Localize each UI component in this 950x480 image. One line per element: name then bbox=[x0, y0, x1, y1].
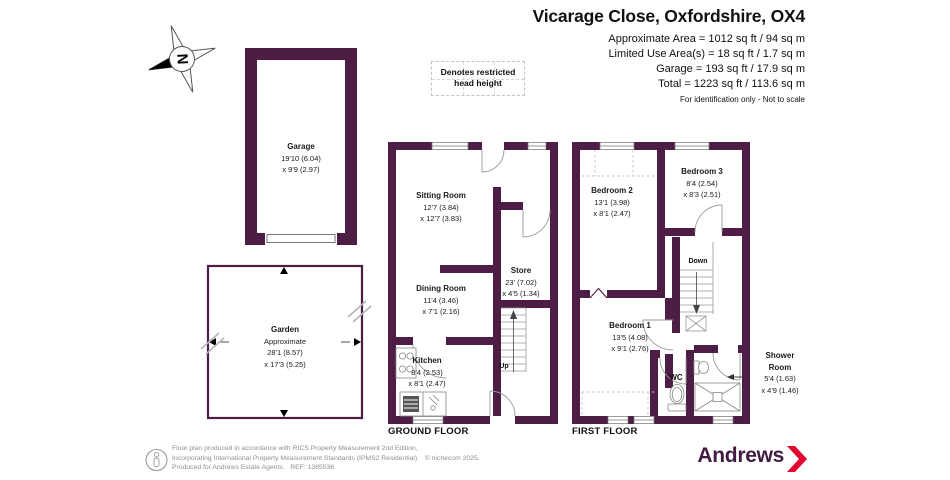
kitchen-label: Kitchen 8'4 (2.53) x 8'1 (2.47) bbox=[389, 355, 465, 390]
down-label: Down bbox=[684, 258, 712, 265]
disclaimer-text: For identification only - Not to scale bbox=[533, 95, 805, 104]
wc-label: WC bbox=[664, 373, 688, 382]
stairs-up-arrow bbox=[510, 310, 517, 319]
dining-room-label: Dining Room 11'4 (3.46) x 7'1 (2.16) bbox=[393, 283, 489, 318]
area-line: Limited Use Area(s) = 18 sq ft / 1.7 sq … bbox=[533, 47, 805, 62]
area-line: Approximate Area = 1012 sq ft / 94 sq m bbox=[533, 32, 805, 47]
toilet-icon bbox=[668, 385, 686, 412]
garden-label: Garden Approximate 28'1 (8.57) x 17'3 (5… bbox=[235, 324, 335, 370]
garage-door bbox=[267, 235, 335, 243]
door-v-symbol bbox=[590, 289, 607, 299]
first-floor-title: FIRST FLOOR bbox=[572, 426, 638, 437]
floor-plan-page: Vicarage Close, Oxfordshire, OX4 Approxi… bbox=[0, 0, 950, 480]
dimension-arrow-right bbox=[354, 338, 361, 346]
basin-icon bbox=[694, 361, 709, 374]
shower-room-label: Shower Room 5'4 (1.63) x 4'9 (1.46) bbox=[752, 350, 808, 396]
footer-disclaimer: Floor plan produced in accordance with R… bbox=[172, 444, 480, 473]
andrews-chevron-icon bbox=[787, 446, 807, 472]
bedroom1-label: Bedroom 1 13'5 (4.08) x 9'1 (2.76) bbox=[582, 320, 678, 355]
stairs-down-arrow bbox=[693, 305, 700, 314]
kitchen-sink-counter bbox=[400, 392, 446, 416]
compass-north-letter: N bbox=[173, 53, 191, 65]
area-line: Garage = 193 sq ft / 17.9 sq m bbox=[533, 62, 805, 77]
footer-line: Incorporating International Property Mea… bbox=[172, 454, 480, 464]
header-block: Vicarage Close, Oxfordshire, OX4 Approxi… bbox=[533, 6, 805, 104]
page-title: Vicarage Close, Oxfordshire, OX4 bbox=[533, 6, 805, 27]
shower-tray-icon bbox=[695, 383, 740, 411]
area-line: Total = 1223 sq ft / 113.6 sq m bbox=[533, 77, 805, 92]
bedroom2-label: Bedroom 2 13'1 (3.98) x 8'1 (2.47) bbox=[564, 185, 660, 220]
andrews-logo: Andrews bbox=[660, 444, 784, 468]
footer-line: Floor plan produced in accordance with R… bbox=[172, 444, 480, 454]
dimension-arrow-up bbox=[280, 267, 288, 274]
bedroom3-label: Bedroom 3 8'4 (2.54) x 8'3 (2.51) bbox=[654, 166, 750, 201]
sitting-room-label: Sitting Room 12'7 (3.84) x 12'7 (3.83) bbox=[391, 190, 491, 225]
dimension-arrow-down bbox=[280, 410, 288, 417]
restricted-height-legend: Denotes restricted head height bbox=[431, 61, 525, 96]
garage-label: Garage 19'10 (6.04) x 9'9 (2.97) bbox=[255, 141, 347, 176]
stairs-down bbox=[680, 242, 713, 331]
left-arrow-icon bbox=[727, 373, 743, 381]
up-label: Up bbox=[494, 363, 514, 370]
nichecom-person-icon bbox=[145, 446, 169, 474]
ground-floor-title: GROUND FLOOR bbox=[388, 426, 469, 437]
compass-icon: N bbox=[145, 22, 220, 97]
footer-line: Produced for Andrews Estate Agents. REF:… bbox=[172, 463, 480, 473]
legend-text: Denotes restricted head height bbox=[432, 67, 524, 89]
store-label: Store 23' (7.02) x 4'5 (1.34) bbox=[492, 265, 550, 300]
